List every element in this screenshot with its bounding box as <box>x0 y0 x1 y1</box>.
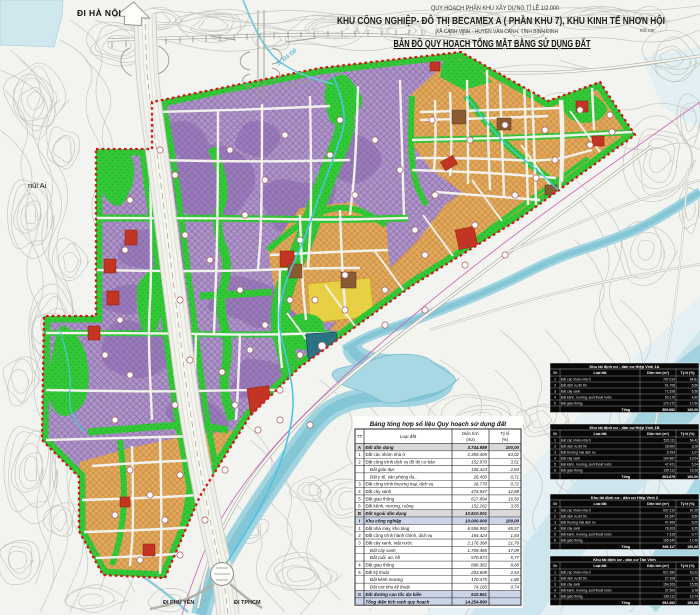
svg-text:Đất ngoài dân dụng: Đất ngoài dân dụng <box>366 511 407 516</box>
svg-text:61.547: 61.547 <box>665 514 675 518</box>
svg-text:Đất giao thông: Đất giao thông <box>561 401 583 405</box>
svg-text:Loại đất: Loại đất <box>594 564 608 568</box>
svg-text:2.359.405: 2.359.405 <box>466 452 487 457</box>
svg-text:Tỷ lệ (%): Tỷ lệ (%) <box>681 371 695 375</box>
svg-text:5: 5 <box>554 532 556 536</box>
svg-text:3,51: 3,51 <box>510 460 519 465</box>
svg-text:Tổng: Tổng <box>621 545 630 549</box>
svg-text:949.117: 949.117 <box>663 545 676 549</box>
svg-text:KỐ VIII: KỐ VIII <box>640 27 655 33</box>
svg-text:15,55: 15,55 <box>690 582 698 586</box>
svg-text:5,00: 5,00 <box>692 520 699 524</box>
svg-text:21,76: 21,76 <box>507 541 520 546</box>
svg-text:Loại đất: Loại đất <box>400 434 417 439</box>
svg-text:474.847: 474.847 <box>471 489 487 494</box>
svg-text:KHU CÔNG NGHIỆP- ĐÔ THỊ BECAME: KHU CÔNG NGHIỆP- ĐÔ THỊ BECAMEX A ( PHẦN… <box>337 14 665 27</box>
svg-text:1,07: 1,07 <box>692 450 699 454</box>
svg-text:100,00: 100,00 <box>506 518 520 523</box>
svg-text:8,25: 8,25 <box>692 526 699 530</box>
svg-text:Diện tích (m²): Diện tích (m²) <box>647 432 669 436</box>
svg-text:4: 4 <box>554 526 556 530</box>
svg-text:2: 2 <box>554 514 556 518</box>
svg-text:Đất cây xanh, mặt nước: Đất cây xanh, mặt nước <box>366 541 414 546</box>
svg-text:0,77: 0,77 <box>692 532 699 536</box>
svg-text:17,46: 17,46 <box>690 538 698 542</box>
svg-text:1,80: 1,80 <box>510 577 519 582</box>
svg-text:Loại đất: Loại đất <box>594 371 608 375</box>
svg-text:Loại đất: Loại đất <box>594 502 608 506</box>
svg-text:570.873: 570.873 <box>471 555 487 560</box>
svg-text:BẢN ĐỒ QUY HOẠCH TỔNG MẶT BẰNG: BẢN ĐỒ QUY HOẠCH TỔNG MẶT BẰNG SỬ DỤNG Đ… <box>394 37 591 50</box>
svg-text:Loại đất: Loại đất <box>594 432 608 436</box>
svg-text:2: 2 <box>554 444 556 448</box>
svg-text:Đất dịch vụ đô thị: Đất dịch vụ đô thị <box>561 514 587 518</box>
svg-text:Đất các nhóm nhà ở: Đất các nhóm nhà ở <box>561 508 592 512</box>
svg-text:6.764: 6.764 <box>667 450 675 454</box>
svg-text:139.112: 139.112 <box>663 468 675 472</box>
svg-text:ĐI HÀ NỘI: ĐI HÀ NỘI <box>77 7 121 18</box>
svg-text:0,72: 0,72 <box>510 482 519 487</box>
svg-text:0,74: 0,74 <box>510 585 519 590</box>
svg-text:Stt: Stt <box>553 432 557 436</box>
svg-text:6.556.950: 6.556.950 <box>467 526 487 531</box>
svg-text:Stt: Stt <box>553 502 557 506</box>
svg-text:Đất nhà máy, kho tàng: Đất nhà máy, kho tàng <box>366 526 410 531</box>
svg-text:Đất cây xanh: Đất cây xanh <box>561 456 580 460</box>
svg-text:(m2): (m2) <box>466 437 475 442</box>
svg-text:Đất dân dụng: Đất dân dụng <box>366 445 394 450</box>
svg-text:54,42: 54,42 <box>690 438 698 442</box>
svg-text:Đất kênh, mương, suối thoát nư: Đất kênh, mương, suối thoát nước <box>561 532 612 536</box>
svg-text:Khu tái định cư - dân cư Hiệp: Khu tái định cư - dân cư Hiệp Vinh 2 <box>591 495 659 500</box>
svg-text:Bảng tổng hợp số liệu Quy hoạc: Bảng tổng hợp số liệu Quy hoạch sử dụng … <box>370 421 507 428</box>
svg-text:(%): (%) <box>502 437 509 442</box>
svg-text:5: 5 <box>554 594 556 598</box>
svg-text:100,00: 100,00 <box>687 601 698 605</box>
svg-text:637.210: 637.210 <box>663 508 675 512</box>
svg-text:3,18: 3,18 <box>692 444 699 448</box>
svg-text:3: 3 <box>554 582 556 586</box>
svg-text:5,77: 5,77 <box>510 555 519 560</box>
svg-text:2,54: 2,54 <box>509 570 519 575</box>
svg-text:1.709.485: 1.709.485 <box>467 548 487 553</box>
svg-text:Đất dịch vụ đô thị: Đất dịch vụ đô thị <box>561 383 587 387</box>
svg-text:1: 1 <box>554 570 556 574</box>
svg-text:Tỷ lệ: Tỷ lệ <box>500 431 510 436</box>
svg-text:Diện tích (m²): Diện tích (m²) <box>647 502 669 506</box>
svg-text:100,00: 100,00 <box>506 445 520 450</box>
svg-text:7.315: 7.315 <box>667 532 675 536</box>
svg-text:Đất kênh, mương, suối thoát nư: Đất kênh, mương, suối thoát nước <box>561 395 612 399</box>
svg-text:Khu tái định cư - dân cư Hiệp: Khu tái định cư - dân cư Hiệp Vinh 1B <box>590 425 660 430</box>
svg-text:4,60: 4,60 <box>692 395 699 399</box>
svg-text:Đất giao thông: Đất giao thông <box>366 563 395 568</box>
svg-text:170.475: 170.475 <box>471 577 487 582</box>
svg-text:8,68: 8,68 <box>510 563 519 568</box>
svg-text:1,64: 1,64 <box>510 533 519 538</box>
svg-text:5: 5 <box>554 401 556 405</box>
svg-text:Diện tích (m²): Diện tích (m²) <box>647 371 669 375</box>
svg-text:707.014: 707.014 <box>663 377 675 381</box>
svg-text:Tỷ lệ (%): Tỷ lệ (%) <box>681 502 695 506</box>
svg-text:3.744.989: 3.744.989 <box>467 445 487 450</box>
svg-text:63,02: 63,02 <box>508 452 520 457</box>
svg-text:B: B <box>358 511 361 516</box>
svg-text:Tỷ lệ (%): Tỷ lệ (%) <box>681 564 695 568</box>
svg-text:Đất giao thông: Đất giao thông <box>561 538 583 542</box>
svg-text:Đất giáo dục: Đất giáo dục <box>370 467 395 472</box>
svg-text:16,50: 16,50 <box>508 496 520 501</box>
svg-text:510.561: 510.561 <box>471 592 487 597</box>
svg-text:Đất giao thông: Đất giao thông <box>561 594 583 598</box>
svg-text:XÃ CANH VINH - HUYỆN VÂN CANH,: XÃ CANH VINH - HUYỆN VÂN CANH, TỈNH BÌNH… <box>436 27 558 35</box>
svg-text:139.112: 139.112 <box>663 594 675 598</box>
svg-text:10,04: 10,04 <box>690 456 698 460</box>
svg-text:5,24: 5,24 <box>692 462 699 466</box>
svg-text:Đất đường cao tốc dự kiến: Đất đường cao tốc dự kiến <box>366 592 422 597</box>
svg-text:Stt: Stt <box>553 371 557 375</box>
svg-text:TT: TT <box>357 434 363 439</box>
svg-text:3,78: 3,78 <box>692 588 699 592</box>
svg-text:Đất các nhóm nhà ở: Đất các nhóm nhà ở <box>561 377 592 381</box>
svg-text:617.894: 617.894 <box>471 496 487 501</box>
svg-text:3: 3 <box>554 389 556 393</box>
svg-text:14.254.890: 14.254.890 <box>465 599 488 604</box>
svg-text:1: 1 <box>554 377 556 381</box>
svg-text:26.770: 26.770 <box>473 482 488 487</box>
svg-text:Đất cây xanh: Đất cây xanh <box>370 548 396 553</box>
svg-text:164.424: 164.424 <box>471 533 487 538</box>
svg-text:I: I <box>359 518 360 523</box>
svg-text:63,22: 63,22 <box>690 570 698 574</box>
svg-text:26.450: 26.450 <box>473 474 488 479</box>
svg-text:100,00: 100,00 <box>687 408 698 412</box>
svg-text:17,90: 17,90 <box>690 401 698 405</box>
svg-text:65,57: 65,57 <box>508 526 520 531</box>
svg-text:5: 5 <box>554 462 556 466</box>
svg-text:Đất giao thông: Đất giao thông <box>561 468 583 472</box>
svg-text:Khu tái định cư - dân cư Tân: Khu tái định cư - dân cư Tân Vinh <box>593 557 656 562</box>
svg-text:Đất ruối, ao, hồ: Đất ruối, ao, hồ <box>370 555 401 560</box>
svg-text:Đất công trình dịch vụ đô thị: Đất công trình dịch vụ đô thị cơ bản <box>366 460 436 465</box>
svg-text:3: 3 <box>554 520 556 524</box>
svg-text:Đất cây xanh: Đất cây xanh <box>561 389 580 393</box>
svg-text:10.510.001: 10.510.001 <box>465 511 488 516</box>
svg-text:Tỷ lệ (%): Tỷ lệ (%) <box>681 432 695 436</box>
svg-text:627.380: 627.380 <box>663 570 675 574</box>
svg-text:Tổng: Tổng <box>621 601 630 605</box>
svg-text:154.263: 154.263 <box>663 582 675 586</box>
svg-text:100,00: 100,00 <box>687 545 698 549</box>
svg-text:6,50: 6,50 <box>692 514 699 518</box>
svg-text:Đất cây xanh: Đất cây xanh <box>561 526 580 530</box>
svg-text:Đất các nhóm nhà ở: Đất các nhóm nhà ở <box>366 452 406 457</box>
svg-text:ĐI PHÚ YÊN: ĐI PHÚ YÊN <box>163 598 194 606</box>
svg-text:6: 6 <box>554 468 556 472</box>
svg-text:Diện tích (m²): Diện tích (m²) <box>647 564 669 568</box>
svg-text:Đất các nhóm nhà ở: Đất các nhóm nhà ở <box>561 438 592 442</box>
svg-text:27.109: 27.109 <box>665 576 675 580</box>
svg-text:203.608: 203.608 <box>470 570 487 575</box>
svg-text:Tổng: Tổng <box>621 408 630 412</box>
svg-text:Đất dịch vụ đô thị: Đất dịch vụ đô thị <box>561 444 587 448</box>
svg-text:Khu công nghiệp: Khu công nghiệp <box>366 518 402 523</box>
svg-text:Stt: Stt <box>553 564 557 568</box>
svg-text:78.203: 78.203 <box>665 526 675 530</box>
svg-text:904.679: 904.679 <box>662 475 675 479</box>
svg-text:6,56: 6,56 <box>692 389 699 393</box>
svg-text:2.176.368: 2.176.368 <box>466 541 487 546</box>
svg-text:515.111: 515.111 <box>664 438 676 442</box>
svg-text:Đất cây xanh: Đất cây xanh <box>366 489 392 494</box>
svg-text:28.600: 28.600 <box>665 444 675 448</box>
svg-text:6: 6 <box>554 538 556 542</box>
svg-text:núi Ai: núi Ai <box>28 181 47 190</box>
svg-text:17,09: 17,09 <box>508 548 520 553</box>
svg-text:64,81: 64,81 <box>690 377 698 381</box>
svg-text:QUY HOẠCH PHÂN KHU XÂY DỰNG TỈ: QUY HOẠCH PHÂN KHU XÂY DỰNG TỈ LỆ 1/2.00… <box>431 4 560 12</box>
svg-text:12,68: 12,68 <box>508 489 520 494</box>
svg-text:Đất công trình thương mại, dịc: Đất công trình thương mại, dịch vụ <box>366 482 434 487</box>
svg-text:4: 4 <box>554 456 556 460</box>
svg-text:Tổng: Tổng <box>621 475 630 479</box>
svg-text:Diện tích: Diện tích <box>462 431 479 436</box>
svg-text:15,26: 15,26 <box>690 468 698 472</box>
svg-text:67,25: 67,25 <box>690 508 698 512</box>
svg-text:2: 2 <box>554 383 556 387</box>
svg-text:165.540: 165.540 <box>663 538 675 542</box>
svg-text:1: 1 <box>554 438 556 442</box>
svg-text:Tổng diện tích ranh quy hoạch: Tổng diện tích ranh quy hoạch <box>366 599 430 604</box>
svg-text:II: II <box>358 592 360 597</box>
svg-text:152.870: 152.870 <box>471 460 487 465</box>
svg-text:13,74: 13,74 <box>690 594 698 598</box>
svg-text:Đất thương mại dịch vụ: Đất thương mại dịch vụ <box>561 450 596 454</box>
svg-text:Đất kỹ thuật: Đất kỹ thuật <box>366 570 390 575</box>
svg-text:1: 1 <box>554 508 556 512</box>
svg-text:74.183: 74.183 <box>474 585 488 590</box>
svg-text:Đất y tế, văn phòng đa...: Đất y tế, văn phòng đa... <box>370 474 418 479</box>
svg-text:ĐI TPHCM: ĐI TPHCM <box>234 600 261 606</box>
svg-text:71.528: 71.528 <box>665 389 675 393</box>
svg-text:4: 4 <box>554 588 556 592</box>
svg-text:Đất kênh, mương, suối thoát nư: Đất kênh, mương, suối thoát nước <box>561 462 612 466</box>
svg-text:5,66: 5,66 <box>692 383 699 387</box>
svg-text:Đất kênh, mương, ruộng: Đất kênh, mương, ruộng <box>366 504 415 509</box>
svg-text:106.424: 106.424 <box>471 467 487 472</box>
svg-text:2: 2 <box>554 576 556 580</box>
svg-text:47.469: 47.469 <box>665 520 675 524</box>
svg-text:Đất cây xanh: Đất cây xanh <box>561 582 580 586</box>
svg-text:0,71: 0,71 <box>510 474 519 479</box>
svg-text:Đất thương mại dịch vụ: Đất thương mại dịch vụ <box>561 520 596 524</box>
svg-text:10.000.000: 10.000.000 <box>465 518 488 523</box>
svg-text:47.421: 47.421 <box>665 462 675 466</box>
svg-text:3: 3 <box>554 450 556 454</box>
svg-text:Đất các nhóm nhà ở: Đất các nhóm nhà ở <box>561 570 592 574</box>
svg-text:Đất dịch vụ đô thị: Đất dịch vụ đô thị <box>561 576 587 580</box>
svg-text:100,00: 100,00 <box>687 475 698 479</box>
svg-text:37.500: 37.500 <box>665 588 675 592</box>
svg-text:Đất các khu kỹ thuật: Đất các khu kỹ thuật <box>370 585 411 590</box>
svg-text:152.262: 152.262 <box>471 504 487 509</box>
svg-text:50.170: 50.170 <box>665 395 675 399</box>
svg-text:868.382: 868.382 <box>471 563 487 568</box>
svg-text:992.492: 992.492 <box>662 601 675 605</box>
svg-text:61.708: 61.708 <box>665 383 675 387</box>
svg-text:Đất giao thông: Đất giao thông <box>366 496 395 501</box>
svg-text:Khu tái định cư - dân cư Hiệp: Khu tái định cư - dân cư Hiệp Vinh 1A <box>590 364 660 369</box>
svg-text:104.967: 104.967 <box>663 456 675 460</box>
svg-text:859.682: 859.682 <box>662 408 675 412</box>
svg-text:2,84: 2,84 <box>509 467 519 472</box>
svg-text:Đất kênh, mương, suối thoát nư: Đất kênh, mương, suối thoát nước <box>561 588 612 592</box>
svg-text:170.172: 170.172 <box>663 401 675 405</box>
svg-text:2,76: 2,76 <box>692 576 699 580</box>
svg-text:Đất kênh mương: Đất kênh mương <box>370 577 403 582</box>
svg-text:4: 4 <box>554 395 556 399</box>
svg-text:Đất công trình hành chính, dịc: Đất công trình hành chính, dịch vụ <box>366 533 433 538</box>
svg-text:3,55: 3,55 <box>510 504 519 509</box>
